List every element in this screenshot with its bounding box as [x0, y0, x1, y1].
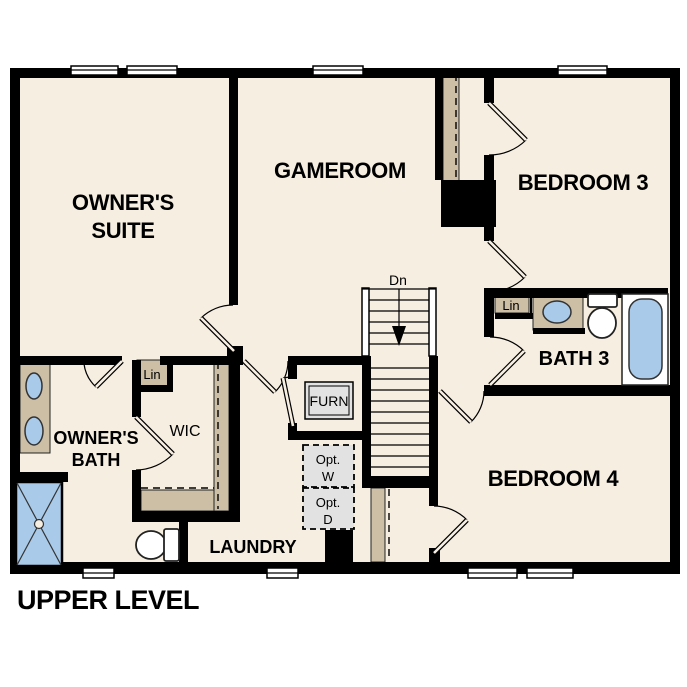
opt-washer-label-line1: Opt. — [316, 452, 341, 467]
wic-label: WIC — [169, 423, 200, 440]
window — [71, 66, 118, 75]
lin-wic-label: Lin — [143, 367, 160, 382]
wall — [325, 530, 353, 564]
wall — [132, 470, 141, 515]
sink — [543, 301, 571, 323]
window — [83, 568, 114, 578]
sink — [26, 373, 42, 399]
stair-down-label: Dn — [389, 272, 407, 288]
owners-suite-label-line1: OWNER'S — [72, 190, 174, 215]
opt-washer-label-line2: W — [322, 469, 335, 484]
opt-dryer-label-line2: D — [323, 512, 332, 527]
owners-bath-label-line2: BATH — [72, 450, 121, 470]
opt-dryer-label-line1: Opt. — [316, 495, 341, 510]
lin-bath3-front-wall — [495, 313, 533, 319]
window — [313, 66, 363, 75]
wall — [484, 385, 670, 396]
wall — [288, 431, 370, 440]
window — [558, 66, 607, 75]
understair-shelf-strip — [371, 488, 385, 562]
wall — [362, 476, 438, 488]
lin-wic-side-wall — [167, 360, 173, 390]
floor-plan-drawing: Dn — [0, 0, 687, 687]
chase-block — [441, 180, 496, 227]
furnace-label: FURN — [310, 393, 349, 409]
bath3-vanity-front-edge — [533, 328, 585, 334]
window — [127, 66, 177, 75]
stair-rail-right — [429, 288, 436, 356]
wall — [229, 352, 240, 522]
toilet — [136, 529, 179, 561]
wall — [20, 356, 122, 365]
stair-rail-left — [362, 288, 369, 356]
window — [468, 568, 517, 578]
bedroom4-label: BEDROOM 4 — [488, 466, 620, 491]
wall — [429, 356, 438, 506]
window — [267, 568, 298, 578]
wall — [484, 227, 494, 241]
wall — [435, 68, 443, 180]
sink — [25, 417, 43, 445]
bedroom3-label: BEDROOM 3 — [518, 170, 649, 195]
wall — [179, 514, 188, 566]
toilet — [588, 294, 617, 338]
wall — [484, 68, 494, 103]
wall — [362, 356, 371, 488]
bath3-label: BATH 3 — [539, 348, 610, 370]
wall — [670, 68, 680, 574]
floor-plan-page: Dn — [0, 0, 687, 687]
bathtub — [622, 294, 668, 385]
window — [527, 568, 573, 578]
page-title: UPPER LEVEL — [17, 585, 199, 615]
wall — [229, 68, 238, 305]
owners-suite-label-line2: SUITE — [91, 218, 154, 243]
owners-bath-label-line1: OWNER'S — [53, 428, 138, 448]
shower-drain — [35, 520, 44, 529]
wall — [484, 155, 494, 183]
laundry-label: LAUNDRY — [209, 537, 296, 557]
shower — [16, 482, 62, 566]
wall — [10, 472, 68, 482]
gameroom-label: GAMEROOM — [274, 158, 406, 183]
lin-bath3-label: Lin — [502, 298, 519, 313]
wall — [288, 356, 370, 365]
wic-shelf-bottom — [141, 490, 214, 511]
wic-shelf-right — [214, 360, 229, 511]
